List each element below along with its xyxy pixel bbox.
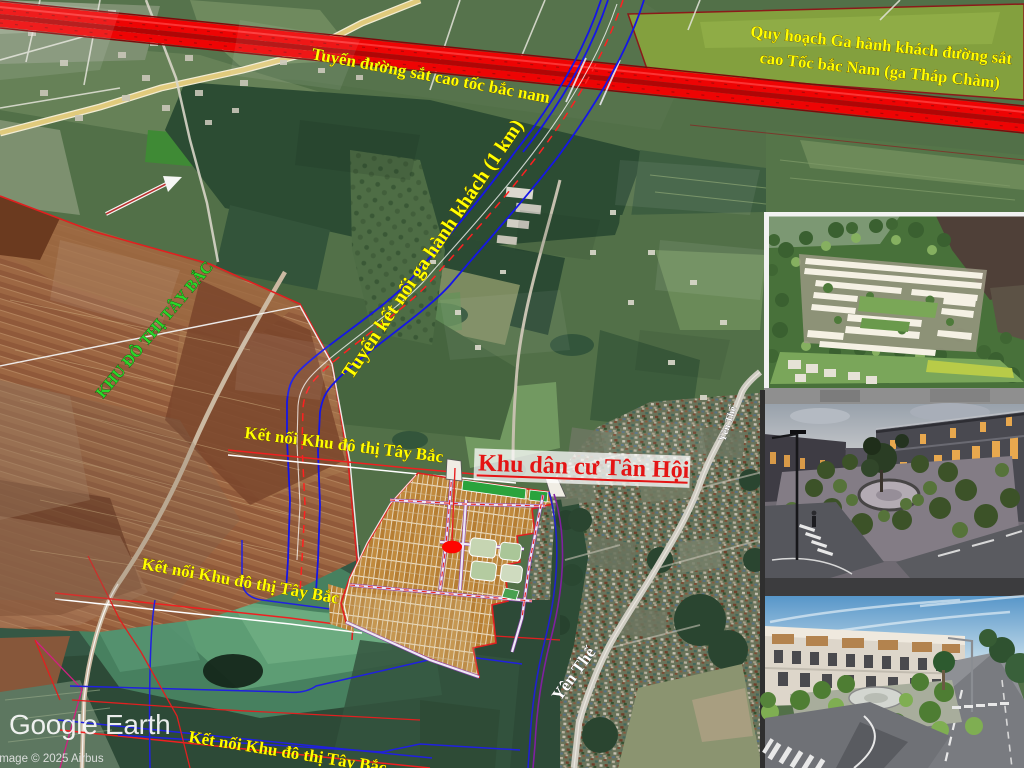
- svg-text:Google Earth: Google Earth: [9, 709, 170, 740]
- svg-text:Image © 2025 Airbus: Image © 2025 Airbus: [0, 753, 104, 765]
